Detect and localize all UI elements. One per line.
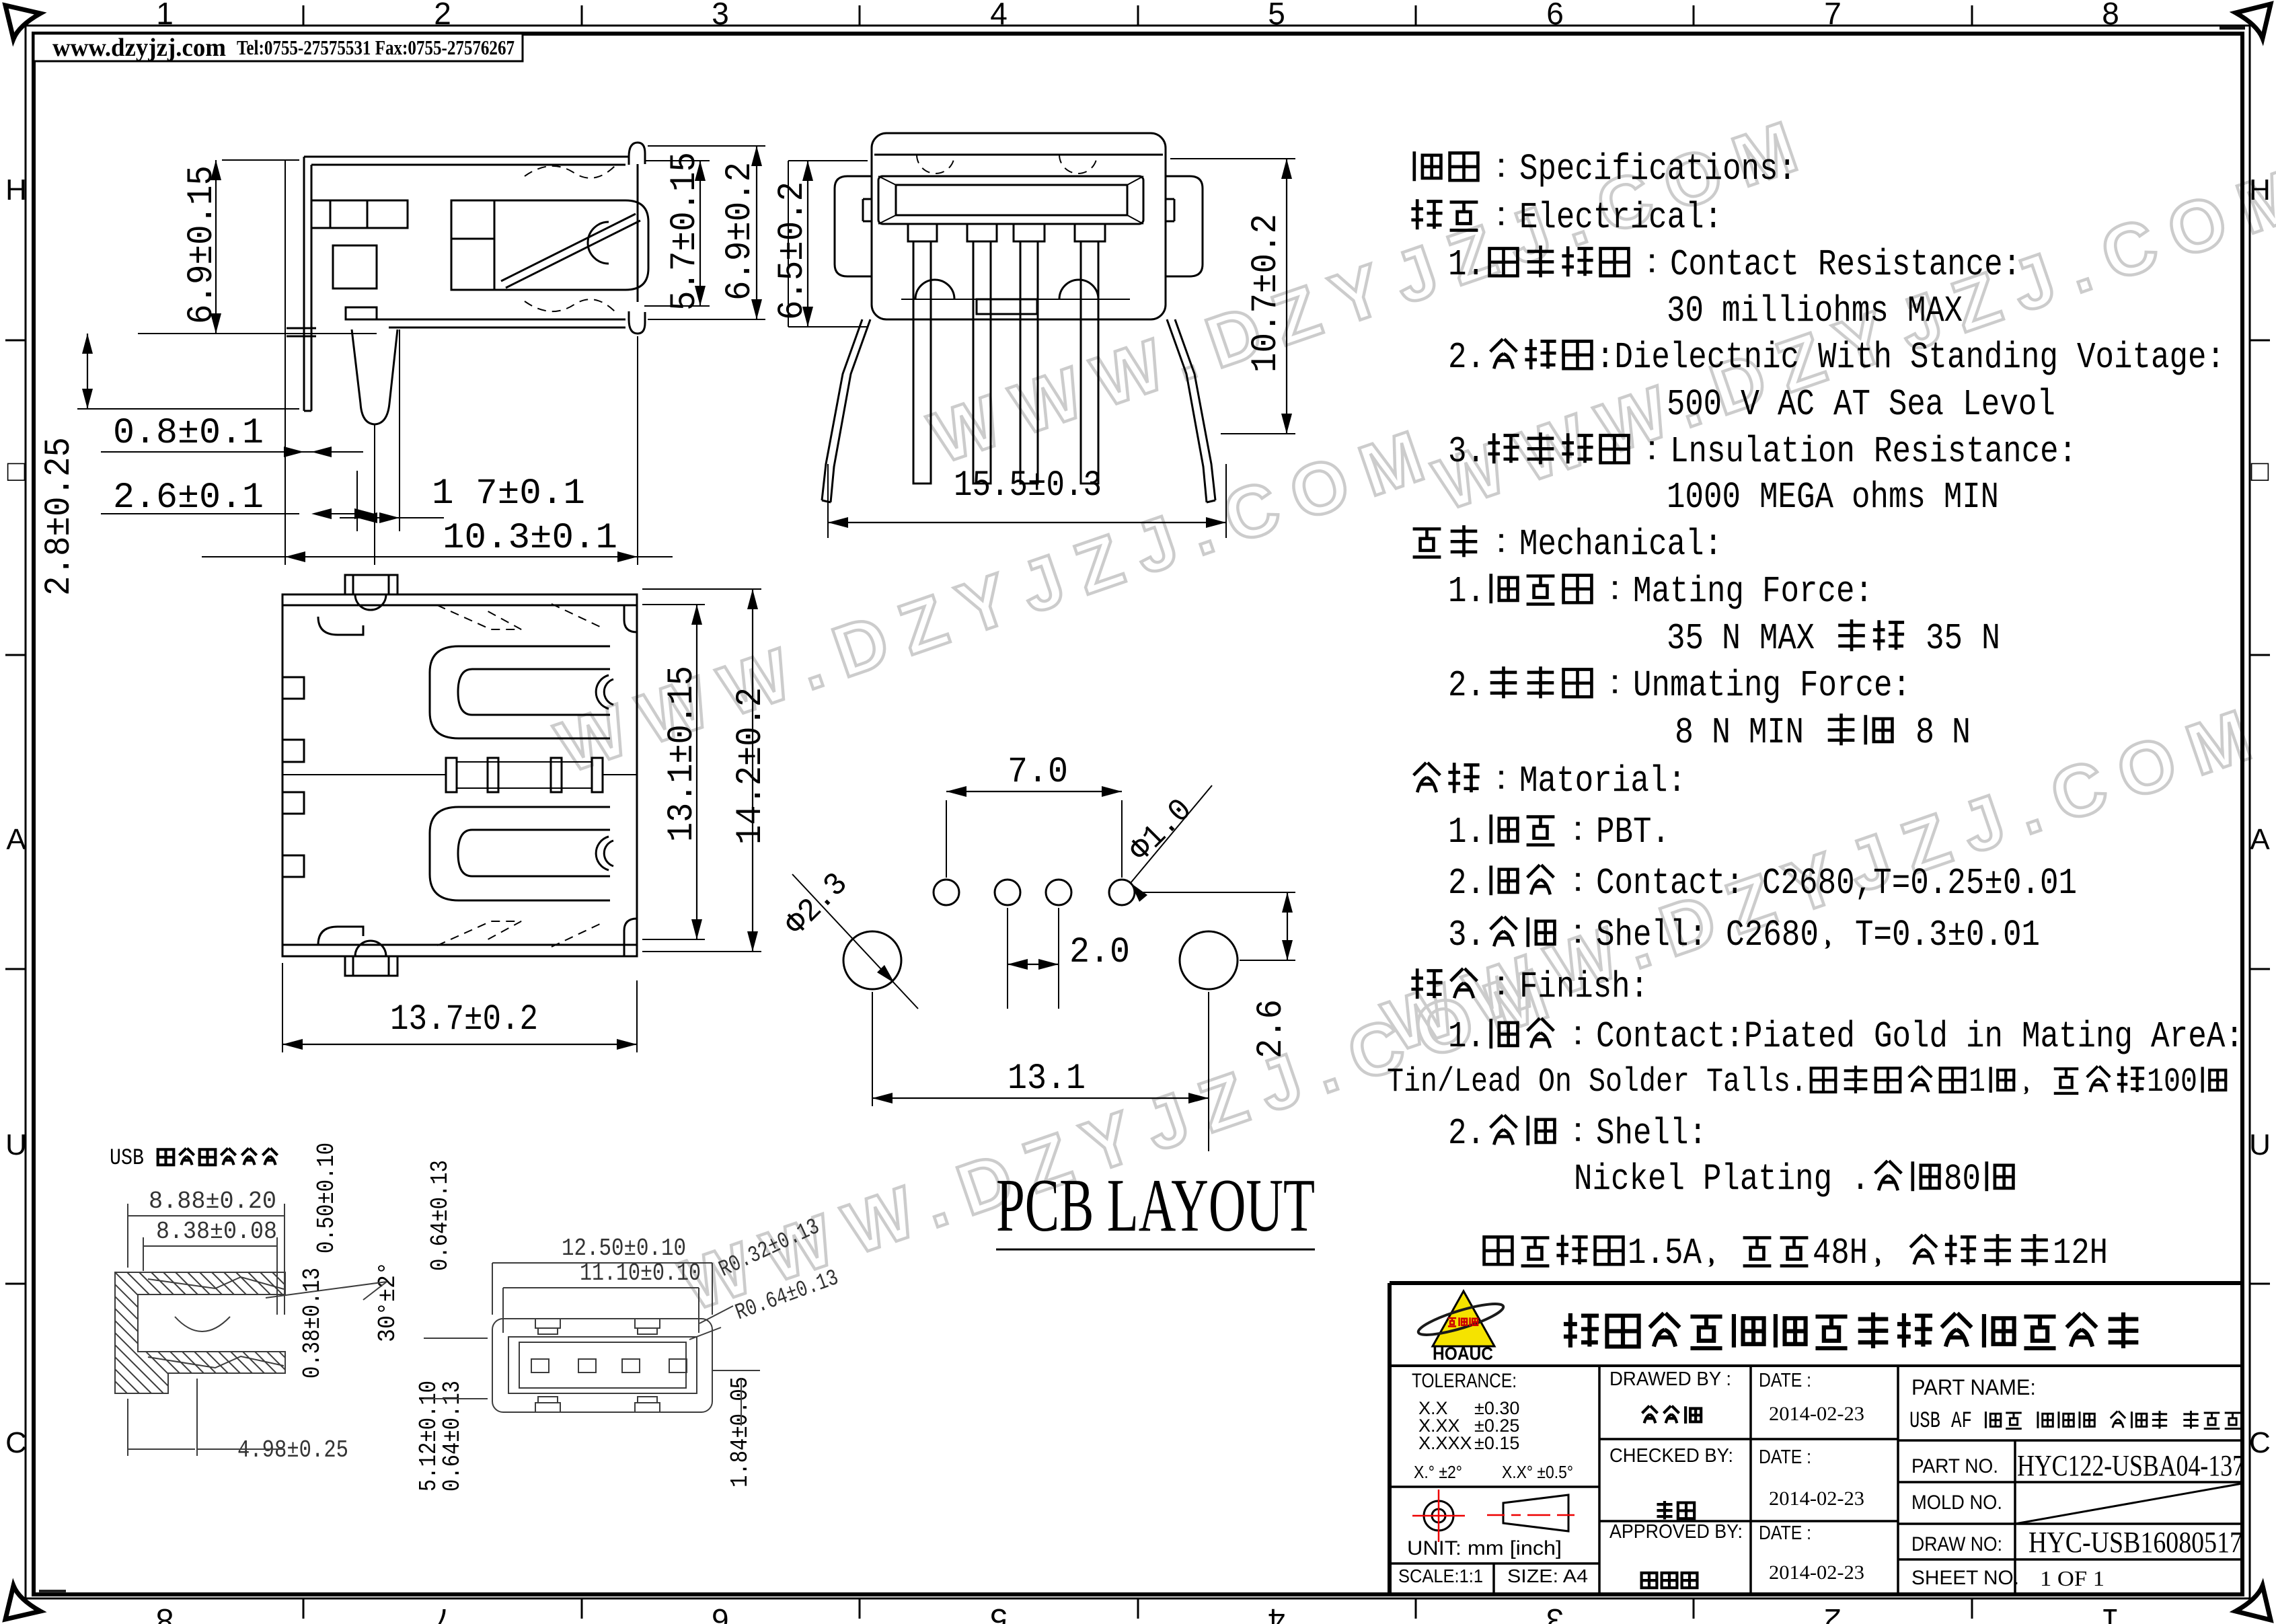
svg-text:MIN: MIN bbox=[1944, 476, 1999, 518]
svg-text:8: 8 bbox=[1675, 711, 1694, 754]
svg-text:Contact:: Contact: bbox=[1596, 862, 1744, 904]
svg-text:X.XXX: X.XXX bbox=[1418, 1433, 1472, 1453]
svg-text:13.1: 13.1 bbox=[1008, 1058, 1086, 1099]
svg-text:Tel:0755-27575531 Fax:0755-27: Tel:0755-27575531 Fax:0755-27576267 bbox=[237, 36, 515, 59]
svg-text:Nickel: Nickel bbox=[1574, 1158, 1685, 1200]
svg-text:±0.15: ±0.15 bbox=[1474, 1433, 1519, 1453]
svg-text:1.: 1. bbox=[1448, 243, 1485, 286]
svg-text:C2680: C2680 bbox=[1726, 914, 1819, 956]
svg-text:8: 8 bbox=[1915, 711, 1934, 754]
svg-text:TOLERANCE:: TOLERANCE: bbox=[1412, 1370, 1517, 1392]
svg-text:MIN: MIN bbox=[1749, 711, 1804, 754]
svg-text::Dielectnic: :Dielectnic bbox=[1596, 336, 1799, 379]
svg-text:11.10±0.10: 11.10±0.10 bbox=[580, 1260, 701, 1287]
svg-text:2014-02-23: 2014-02-23 bbox=[1769, 1403, 1864, 1425]
svg-text:80: 80 bbox=[1944, 1158, 1981, 1200]
svg-text:N: N bbox=[1981, 617, 2000, 660]
svg-text:3: 3 bbox=[1546, 1602, 1564, 1624]
svg-text:Finish:: Finish: bbox=[1519, 966, 1648, 1008]
svg-text:Mating: Mating bbox=[2022, 1015, 2133, 1058]
svg-text:Shell:: Shell: bbox=[1596, 1112, 1707, 1155]
svg-text:6.5±0.2: 6.5±0.2 bbox=[772, 182, 813, 320]
svg-text:2.: 2. bbox=[1448, 664, 1485, 707]
svg-text:8.88±0.20: 8.88±0.20 bbox=[149, 1188, 276, 1215]
svg-text:6: 6 bbox=[712, 1602, 729, 1624]
svg-text:UNIT: mm [inch]: UNIT: mm [inch] bbox=[1407, 1537, 1562, 1559]
svg-text:Voitage:: Voitage: bbox=[2077, 336, 2225, 379]
svg-text:1: 1 bbox=[2102, 1602, 2119, 1624]
svg-text:DATE :: DATE : bbox=[1759, 1522, 1811, 1544]
svg-text:8: 8 bbox=[2102, 0, 2119, 31]
svg-text:H: H bbox=[2249, 173, 2271, 206]
svg-text:in: in bbox=[1966, 1015, 2003, 1058]
svg-text:C: C bbox=[2249, 1426, 2271, 1459]
svg-text:2.8±0.25: 2.8±0.25 bbox=[39, 437, 80, 596]
svg-text:Mating: Mating bbox=[1633, 570, 1744, 613]
svg-text:2.6±0.1: 2.6±0.1 bbox=[113, 477, 264, 518]
svg-text:1.: 1. bbox=[1448, 570, 1485, 613]
svg-text:2: 2 bbox=[434, 0, 451, 31]
svg-text:3.: 3. bbox=[1448, 430, 1485, 473]
svg-text:USB: USB bbox=[110, 1146, 144, 1171]
svg-text:14.2±0.2: 14.2±0.2 bbox=[730, 687, 771, 845]
svg-text:AF: AF bbox=[1951, 1409, 1972, 1434]
svg-text:V: V bbox=[1741, 383, 1759, 426]
svg-text:PART NO.: PART NO. bbox=[1911, 1455, 1998, 1477]
svg-text:A: A bbox=[6, 823, 26, 856]
svg-text:Specifications:: Specifications: bbox=[1519, 148, 1796, 190]
svg-text:N: N bbox=[1952, 711, 1971, 754]
svg-text:Talls.: Talls. bbox=[1706, 1063, 1807, 1101]
svg-text:5: 5 bbox=[1268, 0, 1285, 31]
svg-text:2.: 2. bbox=[1448, 862, 1485, 904]
svg-text:4.98±0.25: 4.98±0.25 bbox=[237, 1436, 348, 1464]
svg-text:CHECKED BY:: CHECKED BY: bbox=[1609, 1445, 1733, 1467]
svg-text:Solder: Solder bbox=[1589, 1063, 1690, 1101]
svg-text:HYC-USB16080517: HYC-USB16080517 bbox=[2028, 1526, 2242, 1559]
svg-text:X.° ±2°: X.° ±2° bbox=[1414, 1462, 1462, 1482]
svg-text:□: □ bbox=[7, 455, 26, 488]
svg-text:2.: 2. bbox=[1448, 336, 1485, 379]
svg-text:PBT.: PBT. bbox=[1596, 811, 1670, 853]
svg-text:2.0: 2.0 bbox=[1069, 932, 1130, 973]
svg-text:N: N bbox=[1722, 617, 1741, 660]
svg-text:PART NAME:: PART NAME: bbox=[1911, 1375, 2036, 1399]
svg-text:1000: 1000 bbox=[1667, 476, 1741, 518]
svg-text:1 OF 1: 1 OF 1 bbox=[2040, 1566, 2104, 1590]
svg-text:2.: 2. bbox=[1448, 1112, 1485, 1155]
svg-text:Contact:Piated: Contact:Piated bbox=[1596, 1015, 1855, 1058]
svg-text:T=0.3±0.01: T=0.3±0.01 bbox=[1855, 914, 2040, 956]
svg-text:12.50±0.10: 12.50±0.10 bbox=[562, 1235, 686, 1262]
svg-text:Force:: Force: bbox=[1762, 570, 1873, 613]
svg-text:8: 8 bbox=[156, 1602, 174, 1624]
svg-text:1: 1 bbox=[156, 0, 174, 31]
svg-text:48H: 48H bbox=[1813, 1232, 1868, 1274]
svg-text:7: 7 bbox=[434, 1602, 451, 1624]
svg-text:With: With bbox=[1818, 336, 1892, 379]
svg-text:SHEET NO.: SHEET NO. bbox=[1911, 1567, 2019, 1589]
svg-text:0.64±0.13: 0.64±0.13 bbox=[439, 1381, 466, 1492]
svg-text:1.: 1. bbox=[1448, 1015, 1485, 1058]
svg-text:13.1±0.15: 13.1±0.15 bbox=[662, 666, 703, 842]
svg-text:.: . bbox=[1851, 1158, 1870, 1200]
svg-text:8.38±0.08: 8.38±0.08 bbox=[156, 1218, 277, 1245]
svg-text:7: 7 bbox=[1824, 0, 1842, 31]
svg-text:PCB LAYOUT: PCB LAYOUT bbox=[996, 1164, 1315, 1247]
svg-text:MOLD NO.: MOLD NO. bbox=[1911, 1492, 2002, 1514]
svg-text:C2680,T=0.25±0.01: C2680,T=0.25±0.01 bbox=[1762, 862, 2077, 904]
svg-text:USB: USB bbox=[1909, 1409, 1940, 1434]
svg-text:1: 1 bbox=[1969, 1063, 1985, 1101]
svg-text:3.: 3. bbox=[1448, 914, 1485, 956]
svg-text:2014-02-23: 2014-02-23 bbox=[1769, 1561, 1864, 1584]
svg-text:HOAUC: HOAUC bbox=[1433, 1344, 1493, 1364]
svg-text:A: A bbox=[2250, 823, 2270, 856]
svg-text:1.84±0.05: 1.84±0.05 bbox=[726, 1377, 754, 1487]
svg-text:2014-02-23: 2014-02-23 bbox=[1769, 1487, 1864, 1510]
svg-text:35: 35 bbox=[1926, 617, 1963, 660]
svg-text:3: 3 bbox=[712, 0, 729, 31]
svg-text:Levol: Levol bbox=[1963, 383, 2055, 426]
svg-text:Mechanical:: Mechanical: bbox=[1519, 523, 1722, 566]
svg-text:MEGA: MEGA bbox=[1759, 476, 1833, 518]
svg-text:1.5A: 1.5A bbox=[1628, 1232, 1702, 1274]
svg-text:4: 4 bbox=[990, 0, 1008, 31]
svg-text:C: C bbox=[5, 1426, 27, 1459]
svg-text:12H: 12H bbox=[2053, 1232, 2108, 1274]
svg-text:2.6: 2.6 bbox=[1251, 999, 1292, 1058]
svg-text:Contact: Contact bbox=[1670, 243, 1799, 286]
svg-text:Resistance:: Resistance: bbox=[1818, 243, 2021, 286]
svg-text:Force:: Force: bbox=[1800, 664, 1911, 707]
svg-text:13.7±0.2: 13.7±0.2 bbox=[390, 999, 538, 1040]
svg-text:DRAWED BY :: DRAWED BY : bbox=[1609, 1368, 1731, 1390]
svg-text:MAX: MAX bbox=[1907, 290, 1963, 332]
svg-text:1.: 1. bbox=[1448, 811, 1485, 853]
svg-text:SIZE: A4: SIZE: A4 bbox=[1507, 1565, 1588, 1586]
svg-text:100: 100 bbox=[2147, 1063, 2197, 1101]
svg-text:30: 30 bbox=[1667, 290, 1704, 332]
svg-text:HYC122-USBA04-137: HYC122-USBA04-137 bbox=[2017, 1449, 2244, 1482]
svg-text:0.50±0.10: 0.50±0.10 bbox=[313, 1143, 340, 1253]
svg-text:X.X° ±0.5°: X.X° ±0.5° bbox=[1502, 1462, 1573, 1482]
svg-text:30°±2°: 30°±2° bbox=[374, 1262, 402, 1342]
svg-text:www.dzyjzj.com: www.dzyjzj.com bbox=[52, 34, 226, 62]
svg-text:milliohms: milliohms bbox=[1722, 290, 1889, 332]
svg-text:ohms: ohms bbox=[1852, 476, 1926, 518]
svg-text:6.9±0.2: 6.9±0.2 bbox=[720, 162, 761, 301]
svg-text:35: 35 bbox=[1667, 617, 1704, 660]
svg-text:1 7±0.1: 1 7±0.1 bbox=[432, 473, 585, 514]
svg-text:Gold: Gold bbox=[1874, 1015, 1948, 1058]
svg-text:0.64±0.13: 0.64±0.13 bbox=[426, 1160, 454, 1271]
svg-text:APPROVED BY:: APPROVED BY: bbox=[1609, 1521, 1743, 1543]
svg-text:Resistance:: Resistance: bbox=[1874, 430, 2077, 473]
svg-text:0.8±0.1: 0.8±0.1 bbox=[113, 413, 264, 454]
svg-text:Tin/Lead: Tin/Lead bbox=[1387, 1063, 1521, 1101]
svg-text:Sea: Sea bbox=[1889, 383, 1944, 426]
svg-text:N: N bbox=[1712, 711, 1731, 754]
svg-text:Unmating: Unmating bbox=[1633, 664, 1781, 707]
svg-text:0.38±0.13: 0.38±0.13 bbox=[299, 1268, 326, 1379]
svg-text:Plating: Plating bbox=[1703, 1158, 1832, 1200]
svg-text:2: 2 bbox=[1824, 1602, 1842, 1624]
svg-text:7.0: 7.0 bbox=[1008, 752, 1068, 793]
svg-text:Matorial:: Matorial: bbox=[1519, 760, 1686, 802]
svg-text:U: U bbox=[5, 1128, 27, 1161]
svg-text:5: 5 bbox=[990, 1602, 1008, 1624]
svg-text:□: □ bbox=[2251, 455, 2269, 488]
svg-text:500: 500 bbox=[1667, 383, 1722, 426]
svg-text:DRAW NO:: DRAW NO: bbox=[1911, 1533, 2002, 1555]
svg-text:SCALE:1:1: SCALE:1:1 bbox=[1398, 1565, 1483, 1586]
svg-text:U: U bbox=[2249, 1128, 2271, 1161]
svg-text:H: H bbox=[5, 173, 27, 206]
svg-text:4: 4 bbox=[1268, 1602, 1285, 1624]
svg-text:Lnsulation: Lnsulation bbox=[1670, 430, 1855, 473]
svg-text:On: On bbox=[1538, 1063, 1572, 1101]
svg-text:AT: AT bbox=[1833, 383, 1870, 426]
svg-text:15.5±0.3: 15.5±0.3 bbox=[954, 465, 1102, 506]
svg-text:Electrical:: Electrical: bbox=[1519, 196, 1722, 239]
svg-text:DATE :: DATE : bbox=[1759, 1446, 1811, 1468]
svg-text:6.9±0.15: 6.9±0.15 bbox=[182, 165, 223, 324]
svg-text:DATE :: DATE : bbox=[1759, 1370, 1811, 1391]
svg-text:MAX: MAX bbox=[1759, 617, 1815, 660]
svg-text:10.7±0.2: 10.7±0.2 bbox=[1246, 214, 1287, 373]
svg-text:AC: AC bbox=[1778, 383, 1815, 426]
svg-text:6: 6 bbox=[1546, 0, 1564, 31]
svg-text:Shell:: Shell: bbox=[1596, 914, 1707, 956]
svg-text:AreA:: AreA: bbox=[2151, 1015, 2244, 1058]
svg-text:5.7±0.15: 5.7±0.15 bbox=[665, 152, 706, 311]
svg-text:Standing: Standing bbox=[1910, 336, 2058, 379]
svg-text:10.3±0.1: 10.3±0.1 bbox=[443, 518, 617, 559]
